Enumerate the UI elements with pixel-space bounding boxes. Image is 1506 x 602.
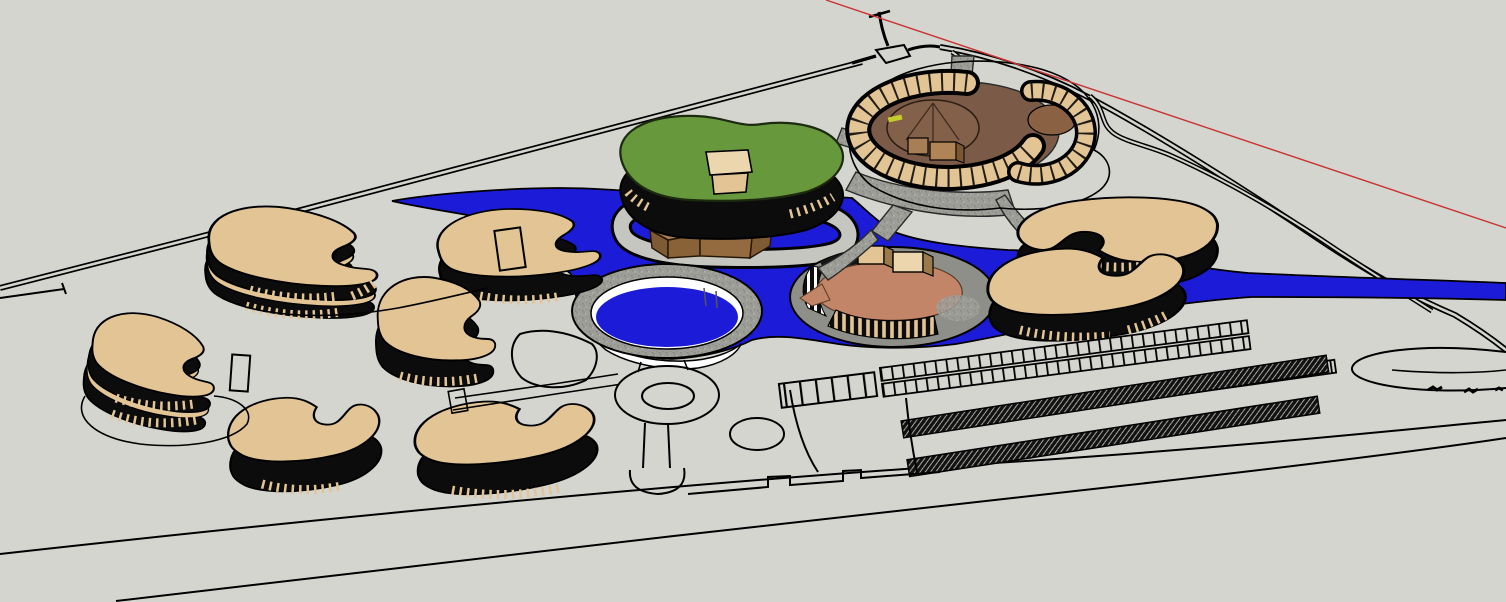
car-mark [1428, 387, 1442, 390]
hall-entrance [706, 150, 752, 194]
model-viewport[interactable]: Aerial 3D site model of a resort campus … [0, 0, 1506, 602]
car-mark [1464, 389, 1478, 392]
green-roof-hall [620, 116, 843, 239]
site-model-canvas[interactable]: Aerial 3D site model of a resort campus … [0, 0, 1506, 602]
island-pavilion [790, 246, 996, 347]
